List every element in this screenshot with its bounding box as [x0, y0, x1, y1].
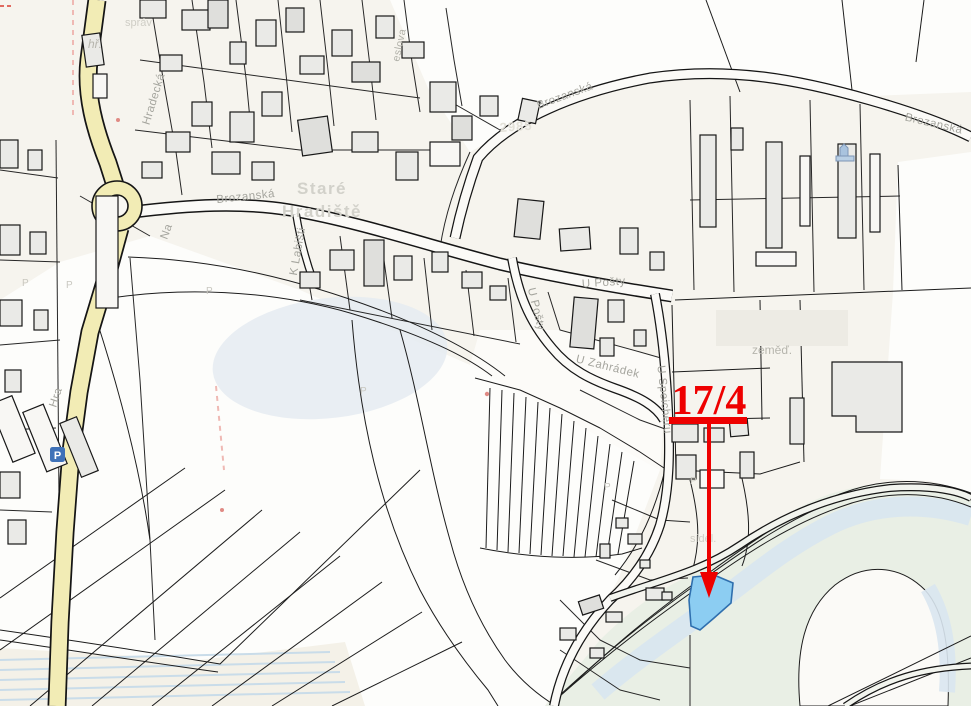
- svg-text:P: P: [690, 476, 697, 487]
- svg-text:P: P: [22, 278, 29, 289]
- label-zemed: zeměď.: [752, 343, 792, 357]
- label-sprav: správ: [125, 17, 152, 29]
- label-road-number: 2985: [499, 118, 533, 135]
- svg-text:P: P: [54, 450, 61, 462]
- svg-text:P: P: [206, 286, 213, 297]
- svg-text:P: P: [360, 386, 367, 397]
- svg-text:P: P: [604, 482, 611, 493]
- parcel-annotation-underline: [669, 417, 747, 424]
- parking-icon: P: [50, 447, 65, 462]
- place-name-line1: Staré: [297, 179, 347, 198]
- map-canvas[interactable]: P hř. správ Hradecká Hra Brozanská Broza…: [0, 0, 971, 706]
- label-sidel: sídel.: [690, 533, 716, 545]
- place-name-line2: Hradiště: [282, 202, 362, 221]
- label-hriste: hř.: [88, 37, 102, 51]
- svg-text:P: P: [66, 280, 73, 291]
